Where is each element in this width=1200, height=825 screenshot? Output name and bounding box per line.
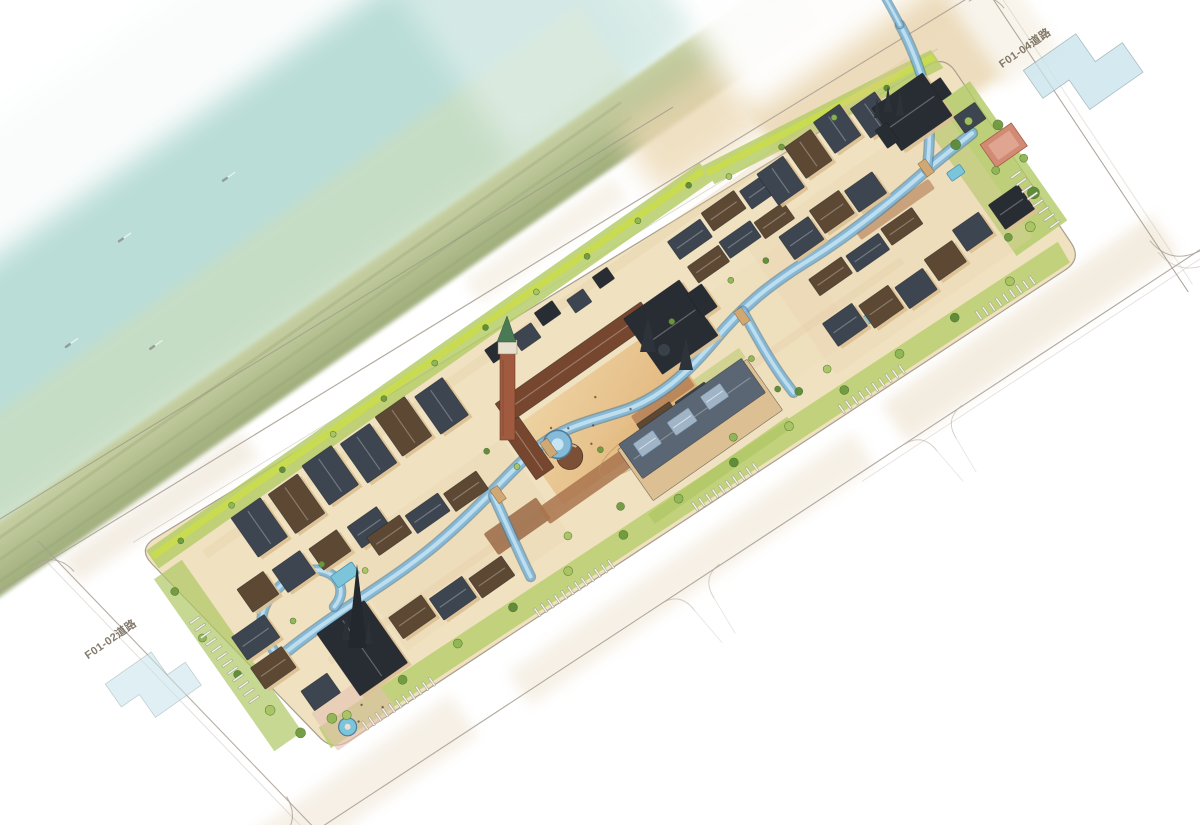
- masterplan-svg: F01-04道路 F01-02道路: [0, 0, 1200, 825]
- masterplan-rendering: F01-04道路 F01-02道路: [0, 0, 1200, 825]
- plan-rotated-group: F01-04道路 F01-02道路: [0, 0, 1200, 825]
- road-label-sw: F01-02道路: [82, 616, 140, 662]
